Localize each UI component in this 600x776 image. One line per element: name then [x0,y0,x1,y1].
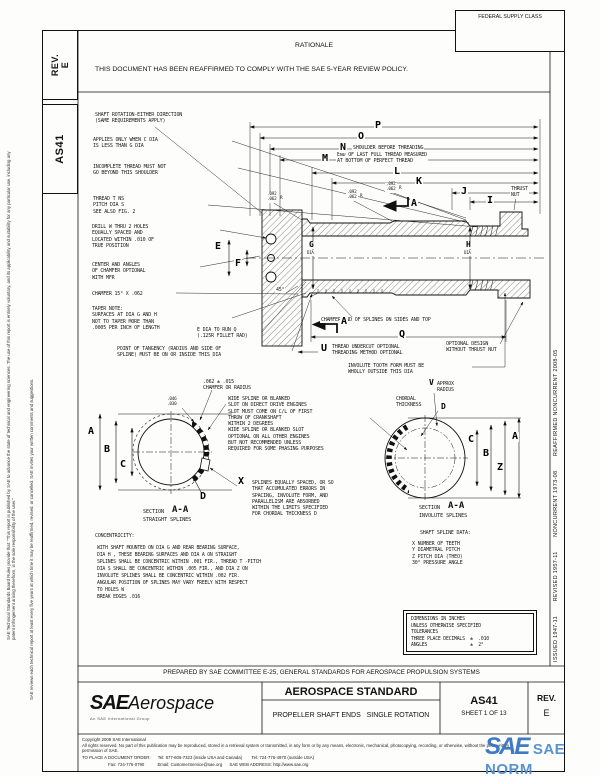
note-last-thread: END OF LAST FULL THREAD MEASURED AT BOTT… [336,152,428,165]
dim-letter-L: L [393,167,401,177]
dim-letter-E: E [214,242,222,252]
g-dia-suffix: DIA [306,250,315,256]
note-wide-spline: WIDE SPLINE OR BLANKED SLOT ON DIRECT DR… [228,396,324,453]
dim-092-3: .092 .062 [385,183,397,193]
note-thrust-nut: THRUST NUT [510,186,529,199]
note-chamfer15: CHAMFER 15° X .062 [92,291,143,297]
dim-letter-P: P [374,121,382,131]
rationale-body: THIS DOCUMENT HAS BEEN REAFFIRMED TO COM… [95,66,408,73]
letter-D-chordal: D [440,403,447,411]
note-thread-t: THREAD T NS PITCH DIA S SEE ALSO FIG. 2 [93,196,135,215]
logo-sae: SAE [90,692,128,714]
left-section-letter-D: D [199,492,207,502]
right-section-letter-B: B [482,449,490,459]
revision-history-sidebar: ISSUED 1947-11 REVISED 1957-11 NONCURREN… [553,62,559,662]
doc-number: AS41 [440,695,528,707]
section-arrow-letter-A-bottom: A [340,317,348,327]
note-involute-tooth: INVOLUTE TOOTH FORM MUST BE WHOLLY OUTSI… [348,363,424,376]
margin-disclaimer-1: SAE Technical Standards Board Rules prov… [6,150,16,640]
logo-aerospace: Aerospace [128,693,214,713]
federal-supply-class-label: FEDERAL SUPPLY CLASS [456,14,564,20]
dim-letter-H: H [465,241,472,249]
left-section-caption-type: STRAIGHT SPLINES [143,517,191,523]
dim-45deg: 45° [275,287,285,293]
tolerance-text: DIMENSIONS IN INCHES UNLESS OTHERWISE SP… [411,617,489,650]
dim-092-2: .092 .062 [346,191,358,201]
note-chordal: CHORDAL THICKNESS [396,396,421,409]
note-shaft-rotation: SHAFT ROTATION-EITHER DIRECTION (SAME RE… [95,112,182,125]
dim-letter-M: M [321,154,329,164]
copyright-line: Copyright 2008 SAE International [82,737,146,742]
dim-r-3: R [399,186,401,192]
rationale-title: RATIONALE [78,42,550,49]
note-optional-design: OPTIONAL DESIGN WITHOUT THRUST NUT [445,341,498,354]
concentricity-title: CONCENTRICITY: [95,533,134,539]
rev-box-label: REV. E [50,32,70,98]
doc-code-label: AS41 [54,106,66,192]
sheet-number: SHEET 1 OF 13 [440,710,528,717]
dim-letter-J: J [460,187,468,197]
dim-letter-F: F [234,259,242,269]
left-section-caption-word: SECTION [143,509,164,515]
rev-box: REV. E [42,30,78,100]
margin-disclaimer-2: SAE reviews each technical report at lea… [29,140,34,700]
left-section-letter-A: A [87,427,95,437]
document-page: FEDERAL SUPPLY CLASS REV. E AS41 SAE Tec… [0,0,600,776]
prepared-by: PREPARED BY SAE COMMITTEE E-25, GENERAL … [78,669,565,676]
doc-code-box: AS41 [42,104,78,194]
note-e-dia: E DIA TO RUN Q (.125R FILLET RAD) [196,327,249,340]
note-tangency: POINT OF TANGENCY (RADIUS AND SIDE OF SP… [117,346,221,359]
right-section-caption-word: SECTION [419,505,440,511]
tolerance-box-inner: DIMENSIONS IN INCHES UNLESS OTHERWISE SP… [406,613,534,652]
left-section-letter-B: B [103,445,111,455]
note-taper: TAPER NOTE: SURFACES AT DIA G AND H NOT … [92,306,159,331]
sae-aerospace-logo: SAEAerospace An SAE International Group [90,692,214,721]
dim-092-1: .092 .062 [266,193,278,203]
rights-line: All rights reserved. No part of this pub… [82,743,512,754]
logo-tagline: An SAE International Group [90,716,214,721]
note-drill-w: DRILL W THRU 2 HOLES EQUALLY SPACED AND … [92,224,154,249]
doc-title: PROPELLER SHAFT ENDS SINGLE ROTATION [262,712,440,719]
dim-046: .046 .030 [167,398,177,408]
order-line-1: TO PLACE A DOCUMENT ORDER: Tel: 877-606-… [82,755,314,760]
dim-letter-Q: Q [398,330,406,340]
concentricity-body: WITH SHAFT MOUNTED ON DIA G AND REAR BEA… [97,545,261,601]
dim-letter-N: N [339,143,347,153]
order-line-2: Fax: 724-776-0790 Email: CustomerService… [108,762,308,767]
dim-r-1: R [280,196,282,202]
dim-r-2: R [360,194,362,200]
sae-norm-watermark: SAE SAE NORM [485,733,600,776]
h-dia-suffix: DIA [463,250,472,256]
dim-letter-I: I [486,196,494,206]
note-center-angles: CENTER AND ANGLES OF CHAMFER OPTIONAL WI… [92,262,145,281]
note-incomplete-thread: INCOMPLETE THREAD MUST NOT GO BEYOND THI… [93,164,166,177]
letter-X: X [237,477,245,487]
note-thread-undercut: THREAD UNDERCUT OPTIONAL THREADING METHO… [332,344,402,357]
spline-data-title: SHAFT SPLINE DATA: [420,530,471,536]
right-section-caption-type: INVOLUTE SPLINES [419,513,467,519]
right-section-caption-aa: A-A [448,502,464,511]
right-section-letter-A: A [511,432,519,442]
left-section-caption-aa: A-A [172,506,188,515]
dim-chamfer-062: .062 ± .015 CHAMFER OR RADIUS [203,379,251,392]
section-arrow-letter-A-top: A [410,199,418,209]
dim-letter-K: K [415,177,423,187]
note-x-splines: SPLINES EQUALLY SPACED, OR SO THAT ACCUM… [252,480,334,518]
dim-letter-G: G [308,241,315,249]
footer-rev-value: E [528,708,565,718]
note-v-radius: APPROX RADIUS [437,381,454,394]
doc-type: AEROSPACE STANDARD [262,686,440,698]
footer-rev-label: REV. [528,693,565,703]
note-shoulder: SHOULDER BEFORE THREADING [352,145,424,151]
dim-letter-U: U [320,344,328,354]
watermark-sae-icon: SAE [485,733,528,760]
left-section-letter-C: C [119,460,127,470]
spline-data-items: X NUMBER OF TEETH Y DIAMETRAL PITCH Z PI… [412,541,463,566]
letter-V: V [428,379,435,387]
right-section-letter-C: C [467,435,475,445]
dim-letter-O: O [357,132,365,142]
note-applies-only: APPLIES ONLY WHEN C DIA IS LESS THAN G D… [93,137,158,150]
right-section-letter-Z: Z [496,463,504,473]
note-chamfer-end: CHAMFER END OF SPLINES ON SIDES AND TOP [320,317,432,323]
